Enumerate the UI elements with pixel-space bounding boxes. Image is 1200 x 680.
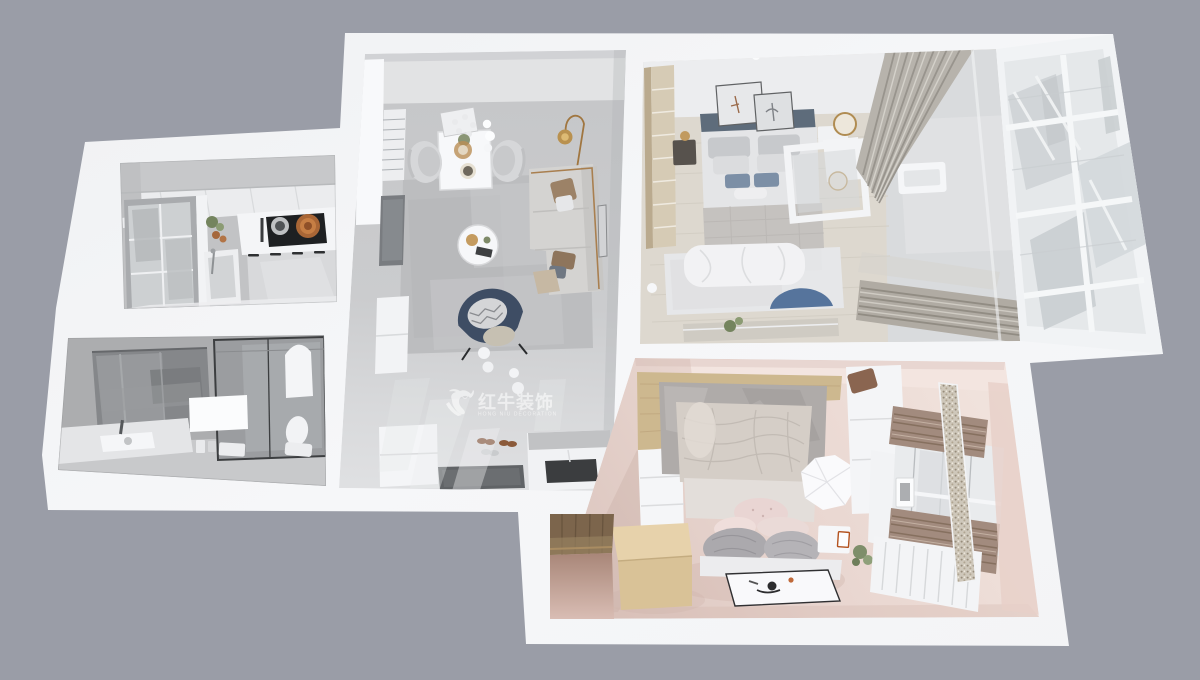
svg-text:红牛装饰: 红牛装饰 — [478, 392, 554, 413]
svg-text:HONG NIU DECORATION: HONG NIU DECORATION — [478, 412, 557, 418]
